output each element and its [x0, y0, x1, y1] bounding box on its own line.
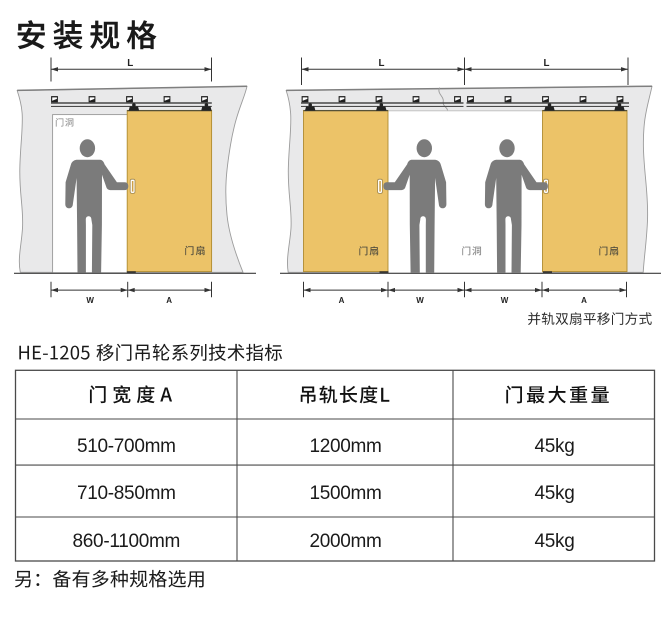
svg-text:45kg: 45kg	[534, 483, 574, 504]
svg-text:W: W	[416, 296, 424, 305]
svg-text:L: L	[127, 58, 133, 69]
svg-text:45kg: 45kg	[534, 531, 574, 552]
svg-text:A: A	[581, 296, 587, 305]
svg-text:A: A	[166, 296, 172, 305]
svg-text:W: W	[501, 296, 509, 305]
svg-text:W: W	[86, 296, 94, 305]
svg-text:510-700mm: 510-700mm	[77, 436, 176, 457]
svg-text:1500mm: 1500mm	[309, 483, 381, 504]
svg-text:L: L	[379, 58, 385, 69]
svg-text:L: L	[544, 58, 550, 69]
svg-text:1200mm: 1200mm	[309, 436, 381, 457]
svg-text:A: A	[339, 296, 345, 305]
svg-text:2000mm: 2000mm	[309, 531, 381, 552]
svg-text:45kg: 45kg	[534, 436, 574, 457]
svg-text:710-850mm: 710-850mm	[77, 483, 176, 504]
svg-text:860-1100mm: 860-1100mm	[73, 531, 181, 552]
